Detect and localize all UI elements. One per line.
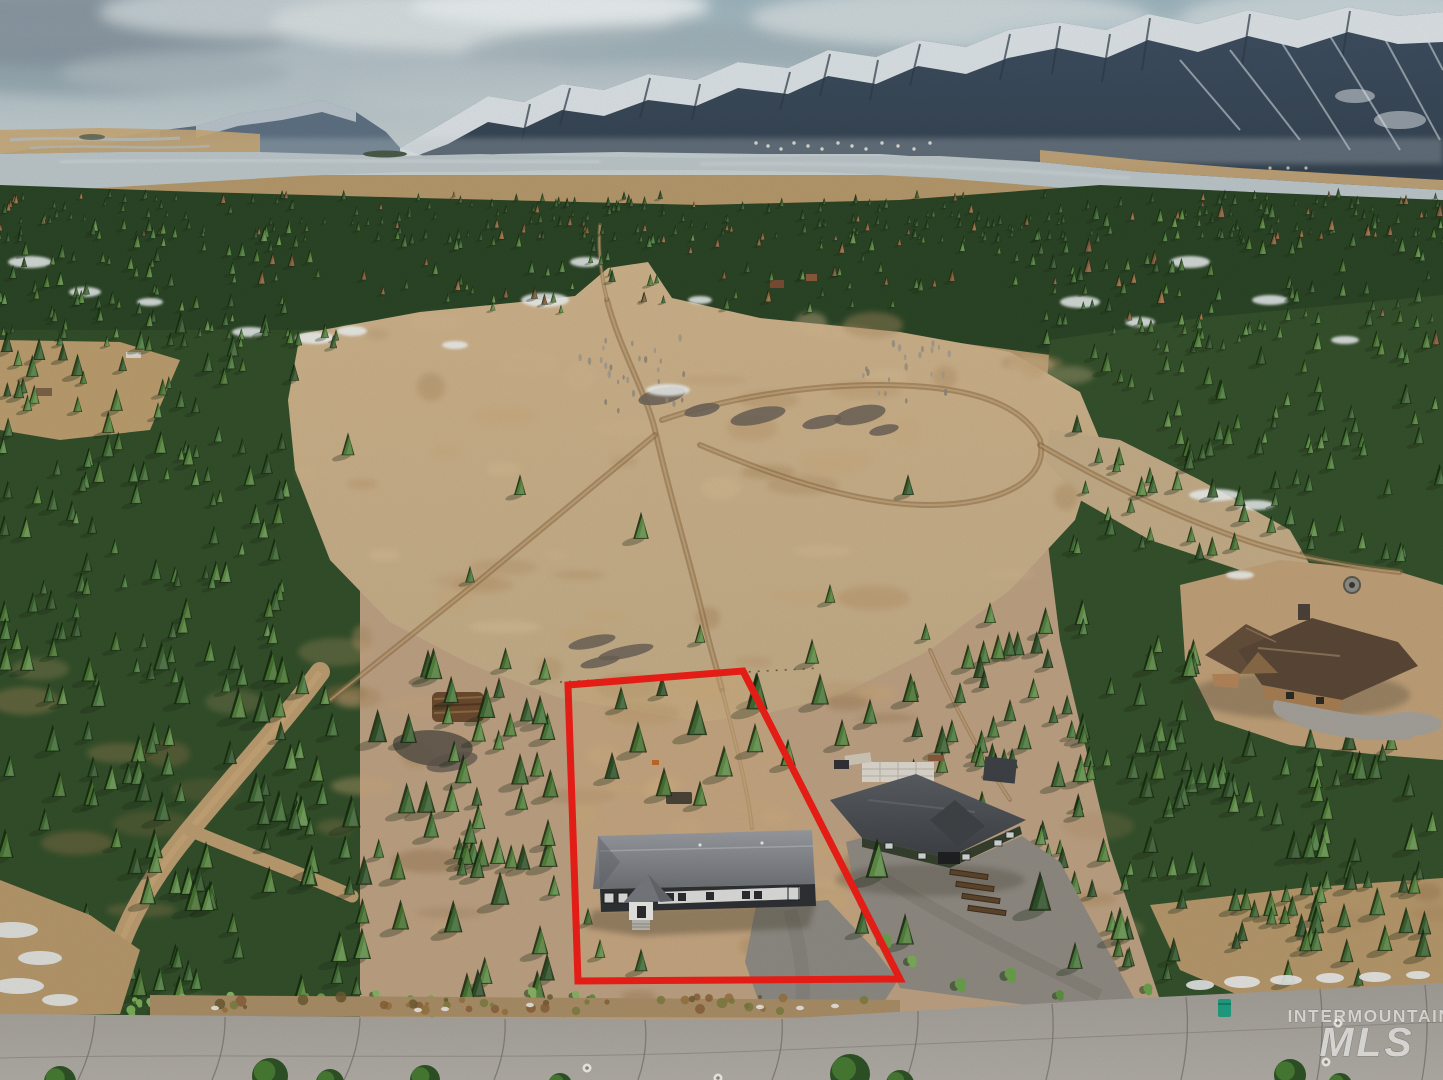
watermark-line2: MLS xyxy=(1319,1019,1415,1065)
photo-grain xyxy=(0,0,1443,1080)
aerial-photo-canvas: INTERMOUNTAIN MLS xyxy=(0,0,1443,1080)
aerial-photo: INTERMOUNTAIN MLS xyxy=(0,0,1443,1080)
